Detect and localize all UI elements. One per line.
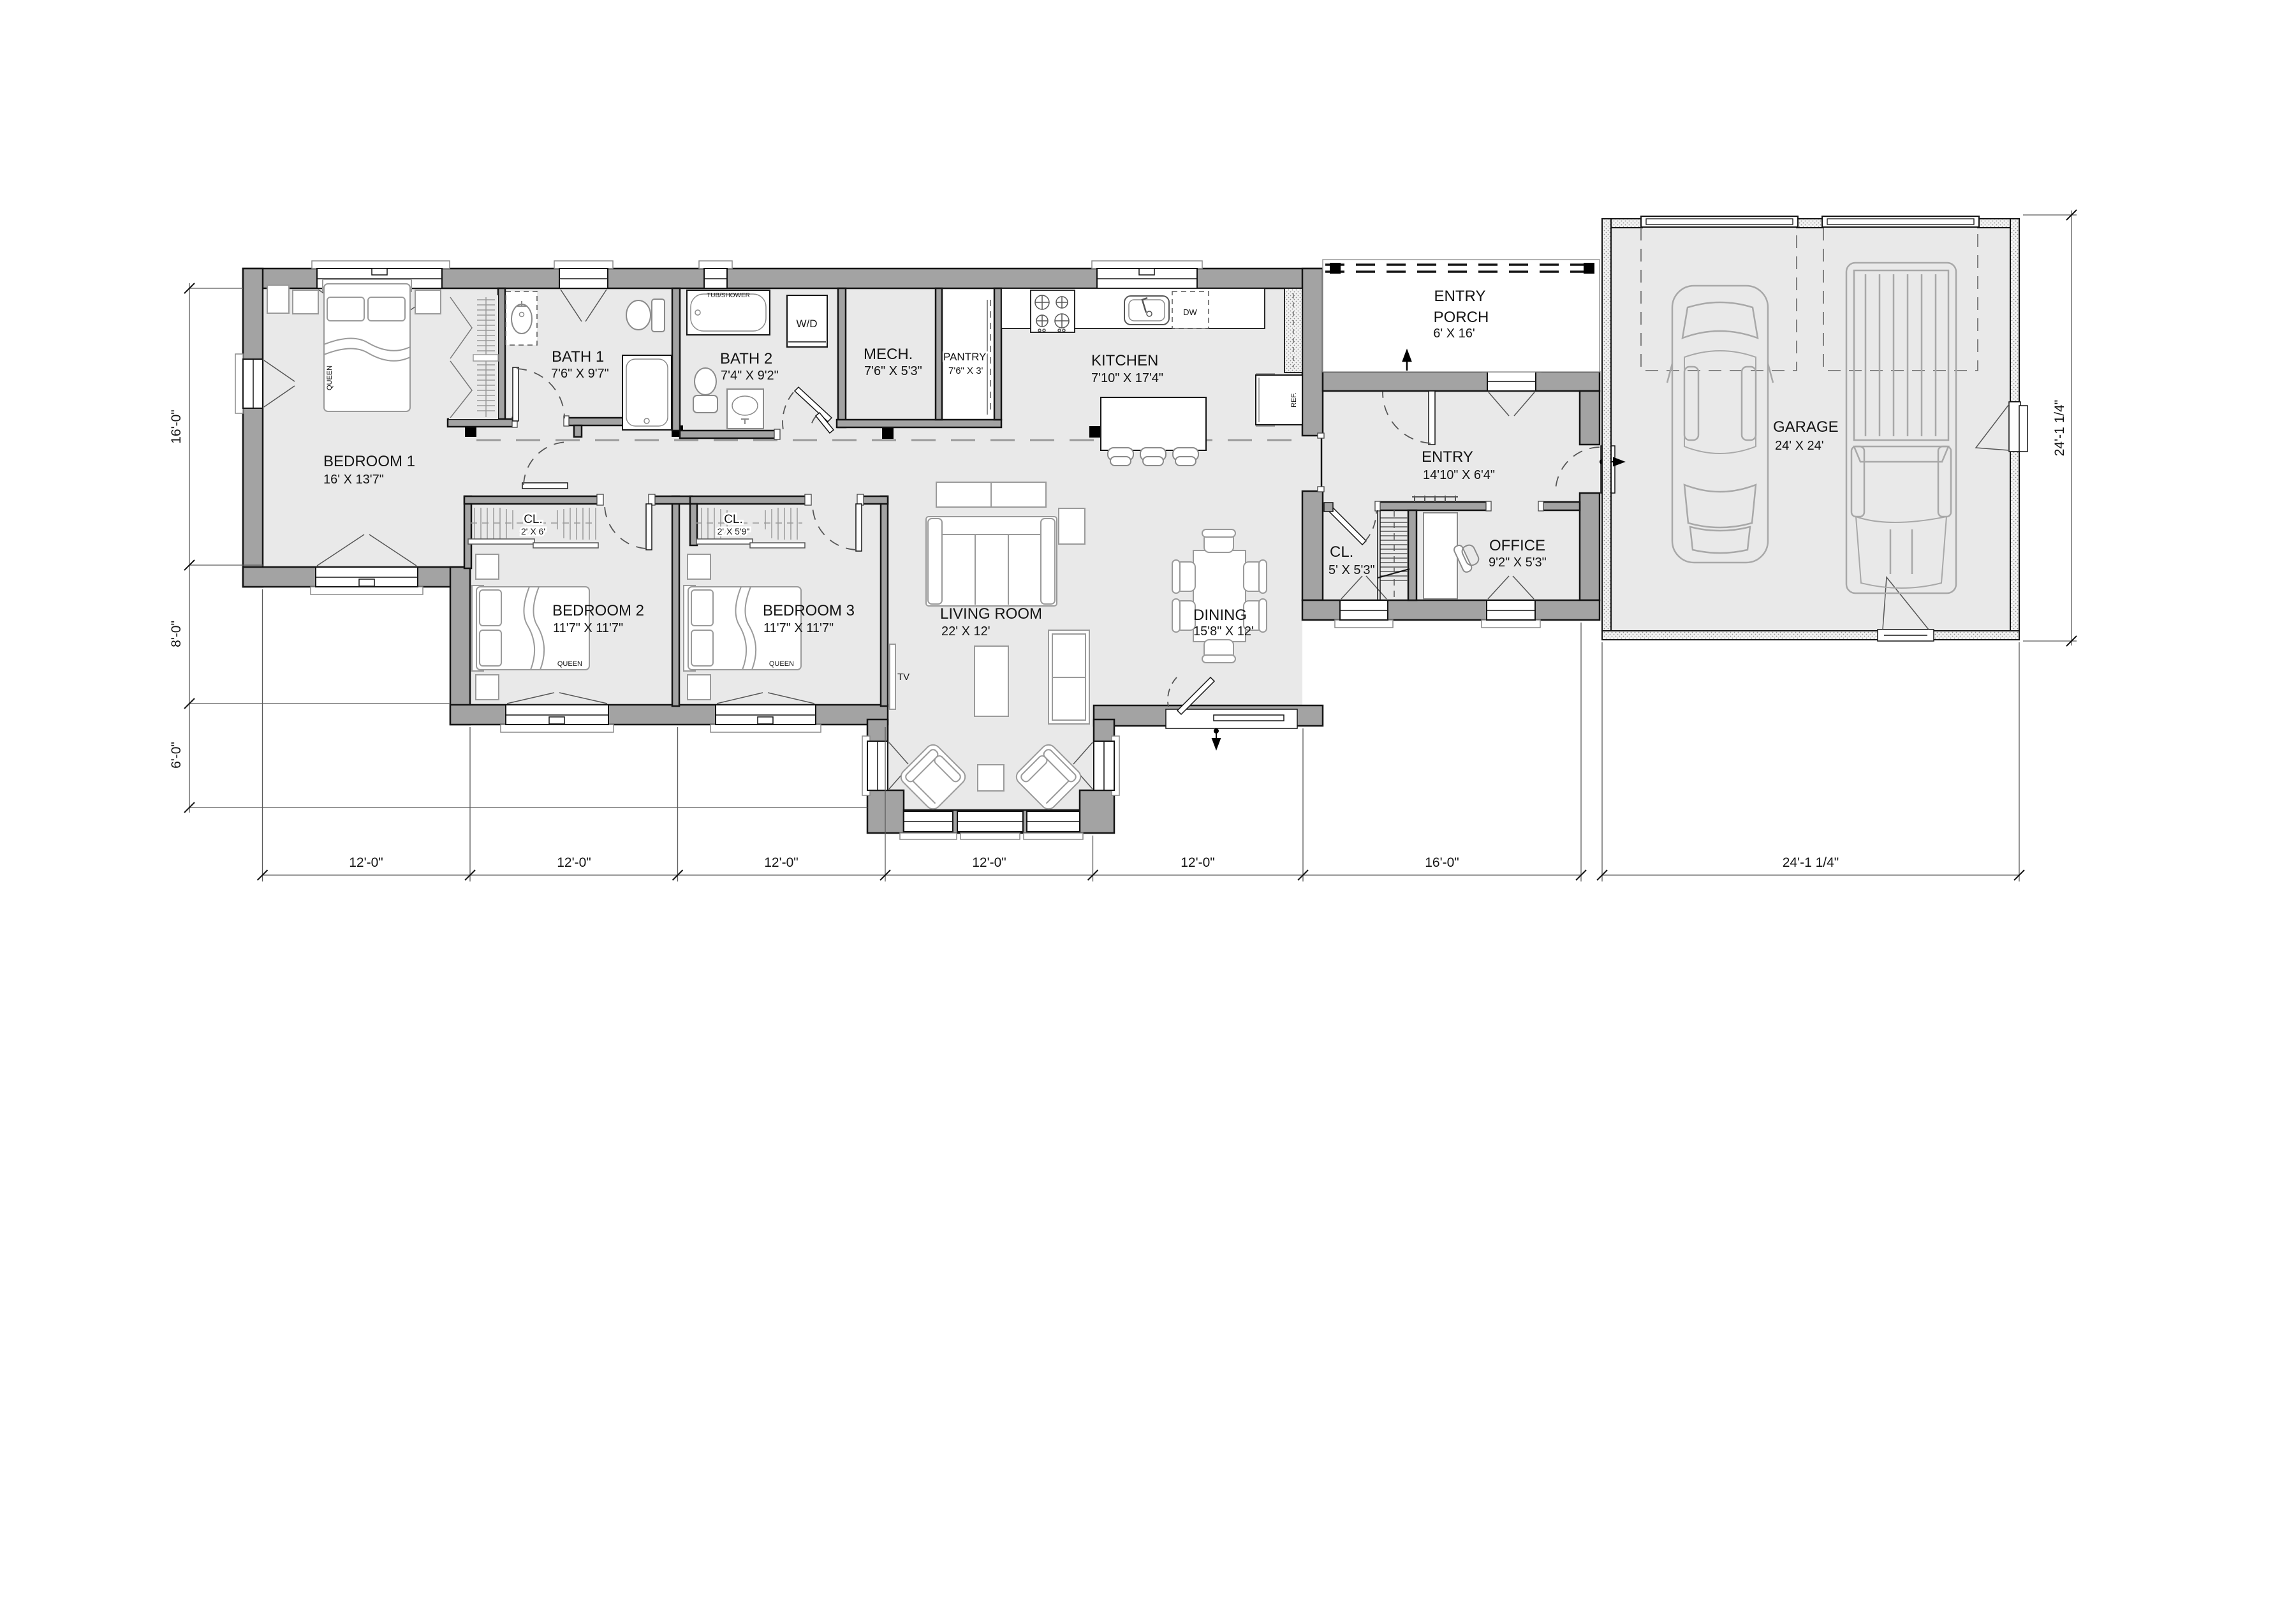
- svg-text:CL.: CL.: [524, 513, 543, 526]
- svg-text:12'-0": 12'-0": [557, 855, 591, 870]
- svg-text:16' X 13'7": 16' X 13'7": [323, 473, 384, 487]
- svg-text:8'-0": 8'-0": [169, 621, 184, 647]
- svg-text:BATH 1: BATH 1: [552, 348, 604, 365]
- svg-text:7'6" X 3': 7'6" X 3': [948, 365, 983, 376]
- svg-text:PORCH: PORCH: [1434, 309, 1489, 326]
- svg-text:12'-0": 12'-0": [1181, 855, 1215, 870]
- svg-text:6' X 16': 6' X 16': [1433, 327, 1475, 341]
- svg-text:QUEEN: QUEEN: [326, 365, 334, 390]
- svg-text:BEDROOM 2: BEDROOM 2: [552, 602, 644, 619]
- svg-text:2' X 6': 2' X 6': [521, 526, 545, 536]
- svg-text:OFFICE: OFFICE: [1489, 537, 1545, 554]
- svg-text:QUEEN: QUEEN: [769, 660, 794, 668]
- svg-text:CL.: CL.: [724, 513, 743, 526]
- svg-text:ENTRY: ENTRY: [1434, 288, 1486, 305]
- svg-text:BEDROOM 1: BEDROOM 1: [323, 453, 415, 470]
- svg-text:12'-0": 12'-0": [972, 855, 1006, 870]
- svg-text:DW: DW: [1183, 307, 1197, 317]
- svg-text:22' X 12': 22' X 12': [941, 624, 990, 638]
- svg-text:7'10" X 17'4": 7'10" X 17'4": [1091, 371, 1163, 385]
- svg-text:MECH.: MECH.: [864, 346, 913, 363]
- svg-text:24' X 24': 24' X 24': [1775, 439, 1824, 453]
- svg-text:24'-1 1/4": 24'-1 1/4": [1783, 855, 1839, 870]
- svg-text:BEDROOM 3: BEDROOM 3: [763, 602, 855, 619]
- svg-text:LIVING ROOM: LIVING ROOM: [940, 605, 1042, 623]
- svg-text:CL.: CL.: [1330, 543, 1353, 561]
- svg-text:7'6" X 9'7": 7'6" X 9'7": [551, 367, 609, 381]
- svg-text:7'4" X 9'2": 7'4" X 9'2": [721, 369, 779, 383]
- svg-text:15'8" X 12': 15'8" X 12': [1193, 624, 1254, 638]
- svg-text:24'-1 1/4": 24'-1 1/4": [2052, 400, 2067, 457]
- svg-text:ENTRY: ENTRY: [1422, 448, 1473, 466]
- svg-text:5' X 5'3": 5' X 5'3": [1328, 563, 1375, 577]
- svg-text:GARAGE: GARAGE: [1773, 418, 1839, 436]
- svg-text:16'-0": 16'-0": [169, 409, 184, 444]
- svg-text:DINING: DINING: [1193, 607, 1247, 624]
- svg-text:W/D: W/D: [796, 318, 817, 330]
- svg-text:7'6" X 5'3": 7'6" X 5'3": [864, 364, 922, 378]
- svg-text:TV: TV: [897, 672, 909, 682]
- svg-text:11'7" X 11'7": 11'7" X 11'7": [763, 621, 834, 635]
- svg-text:2' X 5'9": 2' X 5'9": [717, 526, 750, 536]
- svg-text:QUEEN: QUEEN: [557, 660, 582, 668]
- svg-text:PANTRY: PANTRY: [943, 351, 986, 363]
- svg-text:12'-0": 12'-0": [764, 855, 798, 870]
- svg-text:REF.: REF.: [1290, 392, 1298, 408]
- svg-text:BATH 2: BATH 2: [720, 350, 772, 367]
- svg-text:KITCHEN: KITCHEN: [1091, 352, 1158, 369]
- svg-text:6'-0": 6'-0": [169, 742, 184, 769]
- svg-text:16'-0": 16'-0": [1425, 855, 1459, 870]
- svg-text:11'7" X 11'7": 11'7" X 11'7": [553, 621, 623, 635]
- svg-text:9'2" X 5'3": 9'2" X 5'3": [1489, 556, 1547, 570]
- svg-text:12'-0": 12'-0": [349, 855, 383, 870]
- svg-text:14'10" X 6'4": 14'10" X 6'4": [1423, 468, 1495, 482]
- svg-text:TUB/SHOWER: TUB/SHOWER: [707, 292, 750, 299]
